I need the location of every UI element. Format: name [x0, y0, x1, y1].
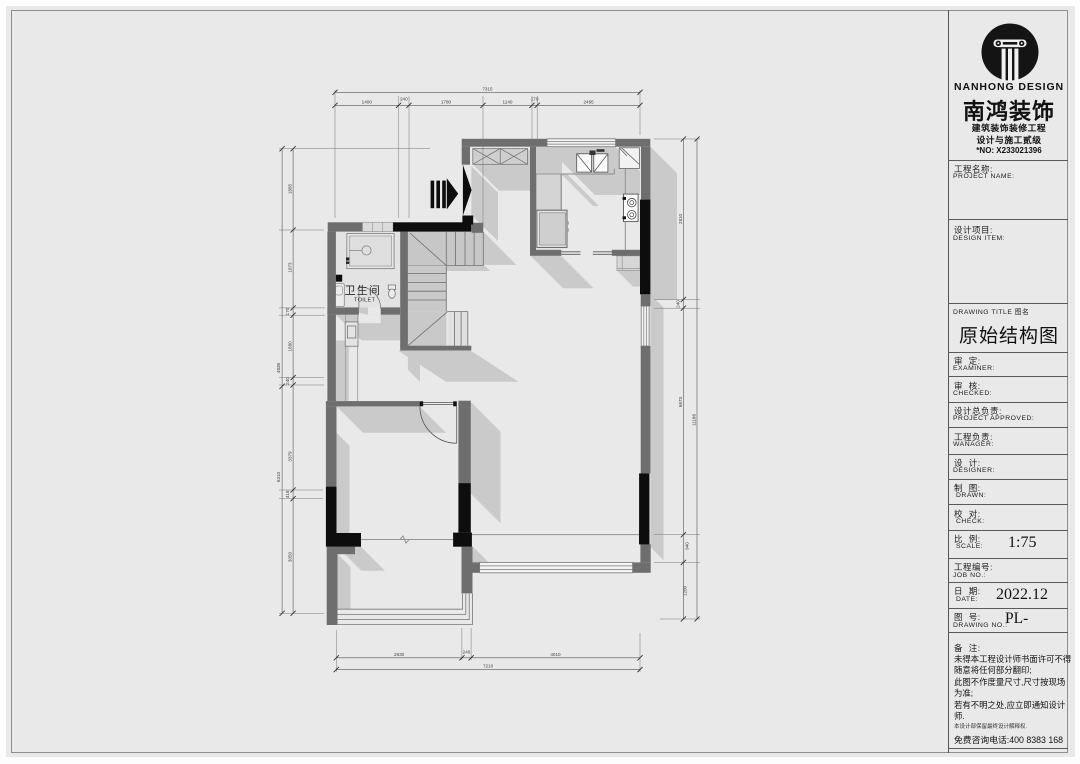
svg-text:170: 170 [285, 307, 290, 315]
svg-text:2495: 2495 [583, 99, 594, 104]
svg-text:240: 240 [400, 97, 408, 102]
svg-text:7210: 7210 [483, 664, 494, 669]
svg-text:1400: 1400 [362, 99, 373, 104]
svg-text:3050: 3050 [288, 551, 293, 562]
svg-text:240: 240 [676, 300, 681, 308]
svg-text:7315: 7315 [482, 86, 493, 91]
svg-text:1880: 1880 [288, 341, 293, 352]
svg-text:2930: 2930 [394, 652, 405, 657]
svg-text:6310: 6310 [276, 471, 281, 482]
svg-text:3379: 3379 [288, 451, 293, 462]
svg-text:6673: 6673 [678, 396, 683, 407]
svg-text:1780: 1780 [441, 99, 452, 104]
svg-text:卫生间: 卫生间 [345, 283, 382, 297]
svg-text:940: 940 [685, 542, 690, 550]
svg-text:240: 240 [285, 377, 290, 385]
svg-text:4838: 4838 [276, 362, 281, 373]
svg-text:418: 418 [285, 490, 290, 498]
svg-text:TOILET: TOILET [354, 298, 376, 304]
svg-text:1885: 1885 [288, 183, 293, 194]
svg-text:1200: 1200 [683, 585, 688, 596]
svg-text:2810: 2810 [678, 213, 683, 224]
svg-text:4010: 4010 [550, 652, 561, 657]
svg-text:240: 240 [463, 649, 471, 654]
svg-text:1140: 1140 [503, 99, 513, 104]
svg-text:1873: 1873 [288, 262, 293, 273]
svg-text:11188: 11188 [691, 414, 696, 427]
svg-text:170: 170 [531, 97, 539, 102]
